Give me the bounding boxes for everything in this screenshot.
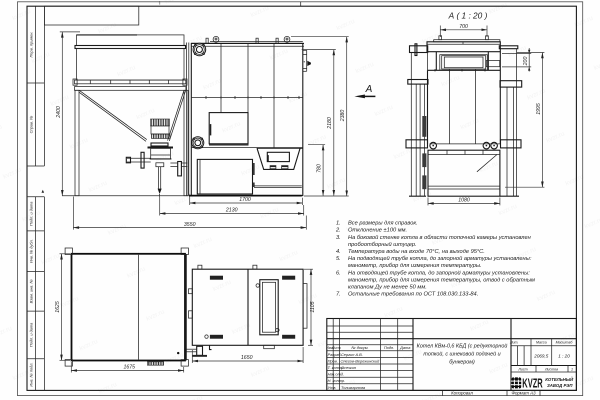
svg-text:Утв.: Утв.: [328, 385, 337, 390]
svg-text:1105: 1105: [310, 301, 316, 312]
svg-text:бункером): бункером): [449, 360, 475, 366]
svg-text:А: А: [365, 84, 373, 95]
svg-text:4.: 4.: [336, 249, 341, 255]
svg-text:2400: 2400: [56, 106, 62, 119]
svg-text:1650: 1650: [241, 355, 253, 361]
svg-text:пробоотборный штуцер.: пробоотборный штуцер.: [348, 241, 417, 248]
svg-text:1995: 1995: [536, 103, 542, 115]
svg-text:KVZR: KVZR: [522, 375, 542, 390]
svg-text:1.: 1.: [336, 221, 341, 227]
svg-text:манометр, прибор для измерения: манометр, прибор для измерения температу…: [348, 277, 535, 283]
svg-text:Масштаб: Масштаб: [556, 340, 574, 344]
svg-text:2130: 2130: [225, 208, 238, 214]
svg-text:Дата: Дата: [399, 345, 411, 350]
svg-text:Нач.отд.: Нач.отд.: [328, 372, 344, 377]
svg-text:Сергин А.В.: Сергин А.В.: [341, 352, 363, 357]
svg-text:Все размеры для справок.: Все размеры для справок.: [348, 221, 418, 227]
svg-text:6.: 6.: [336, 270, 341, 276]
svg-text:Формат А3: Формат А3: [511, 391, 536, 396]
svg-text:1: 1: [571, 368, 573, 372]
svg-text:КОТЕЛЬНЫЙ: КОТЕЛЬНЫЙ: [545, 377, 574, 382]
svg-text:2.: 2.: [335, 228, 341, 234]
svg-text:Олегов-Вережинский: Олегов-Вережинский: [341, 358, 381, 363]
svg-text:1080: 1080: [458, 198, 470, 204]
svg-text:1625: 1625: [55, 301, 61, 313]
svg-text:Лист: Лист: [517, 368, 527, 372]
svg-text:Взам. инв. №: Взам. инв. №: [28, 278, 33, 303]
svg-text:2180: 2180: [327, 117, 333, 130]
svg-text:Температура воды на входе 70°С: Температура воды на входе 70°С, на выход…: [348, 249, 485, 255]
svg-text:1700: 1700: [239, 197, 251, 203]
svg-text:Листов: Листов: [544, 368, 558, 372]
svg-text:топкой, с шнековой подачей и: топкой, с шнековой подачей и: [423, 351, 500, 358]
svg-text:2069,5: 2069,5: [533, 354, 548, 359]
svg-text:1 : 20: 1 : 20: [558, 354, 570, 359]
svg-text:700: 700: [459, 24, 468, 30]
svg-text:Н. контр.: Н. контр.: [328, 378, 346, 383]
svg-text:3550: 3550: [184, 222, 196, 228]
svg-text:№ докум.: № докум.: [351, 345, 368, 350]
svg-text:Пров.: Пров.: [328, 358, 338, 363]
svg-text:Лит.: Лит.: [509, 340, 518, 344]
svg-text:Инв. № дубл.: Инв. № дубл.: [28, 239, 33, 263]
svg-text:Масса: Масса: [536, 340, 547, 344]
svg-text:Подп.: Подп.: [384, 345, 394, 350]
svg-text:780: 780: [316, 164, 322, 173]
svg-text:Осечкин: Осечкин: [341, 365, 357, 370]
svg-text:ЗАВОД РЭП: ЗАВОД РЭП: [547, 383, 573, 388]
svg-text:На подводящей трубе котла, до: На подводящей трубе котла, до запорной а…: [348, 255, 532, 262]
svg-text:Справ. №: Справ. №: [28, 115, 33, 133]
svg-text:На боковой стенке котла в обла: На боковой стенке котла в области топочн…: [348, 234, 532, 241]
svg-text:2380: 2380: [340, 110, 346, 123]
svg-text:Разраб.: Разраб.: [328, 352, 342, 357]
svg-text:клапаном Ду не менее 50 мм.: клапаном Ду не менее 50 мм.: [348, 285, 427, 291]
svg-text:Толижарлова: Толижарлова: [341, 385, 366, 390]
svg-text:манометр, прибор для измерения: манометр, прибор для измерения температу…: [348, 263, 482, 269]
svg-text:Копировал: Копировал: [451, 391, 473, 396]
svg-text:На отводящей трубе котла, до з: На отводящей трубе котла, до запорной ар…: [348, 269, 530, 276]
svg-text:А ( 1 : 20 ): А ( 1 : 20 ): [448, 10, 488, 20]
svg-text:Остальные требования по ОСТ 10: Остальные требования по ОСТ 108.030.133-…: [348, 292, 478, 298]
svg-text:Отклонение ±100 мм.: Отклонение ±100 мм.: [348, 228, 407, 234]
svg-text:Котел КВм-0,6 КБД (с редукторн: Котел КВм-0,6 КБД (с редукторной: [417, 343, 508, 350]
svg-text:Подп. и дата: Подп. и дата: [28, 201, 33, 226]
svg-text:Подп. и дата: Подп. и дата: [28, 322, 33, 347]
svg-text:Инв. № подл.: Инв. № подл.: [28, 362, 33, 386]
svg-text:7.: 7.: [336, 292, 341, 298]
svg-text:5.: 5.: [336, 256, 341, 262]
svg-text:3.: 3.: [336, 235, 341, 241]
svg-text:200: 200: [523, 57, 529, 67]
svg-text:Лист: Лист: [331, 346, 341, 350]
svg-text:Перв. примен.: Перв. примен.: [28, 32, 33, 58]
svg-text:1675: 1675: [124, 365, 136, 371]
